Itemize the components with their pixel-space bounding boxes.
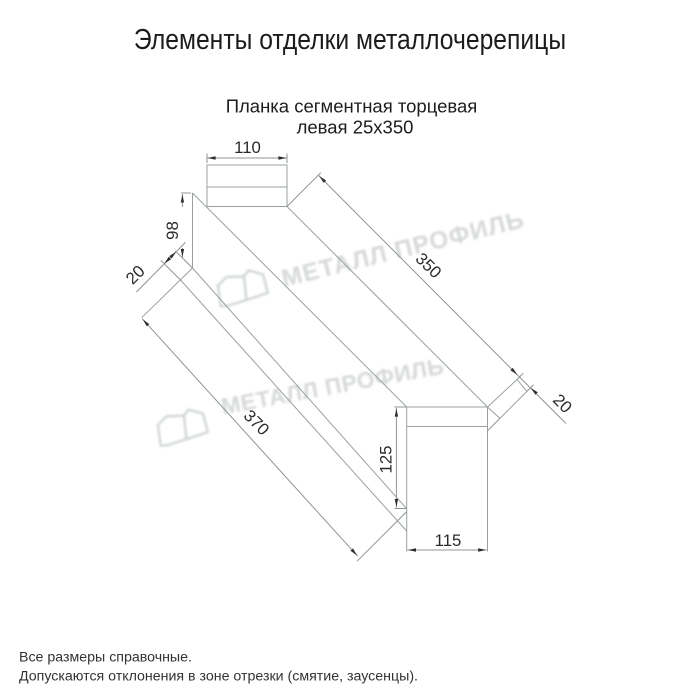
svg-text:левая 25х350: левая 25х350 <box>297 117 414 138</box>
svg-text:110: 110 <box>234 138 261 157</box>
svg-text:98: 98 <box>163 221 182 240</box>
svg-text:Все размеры справочные.: Все размеры справочные. <box>19 650 192 666</box>
svg-text:Допускаются отклонения в зоне: Допускаются отклонения в зоне отрезки (с… <box>19 669 418 685</box>
svg-text:Элементы отделки металлочерепи: Элементы отделки металлочерепицы <box>134 23 566 55</box>
svg-text:Планка сегментная торцевая: Планка сегментная торцевая <box>226 96 478 117</box>
svg-text:115: 115 <box>435 531 462 550</box>
svg-text:125: 125 <box>376 446 395 474</box>
